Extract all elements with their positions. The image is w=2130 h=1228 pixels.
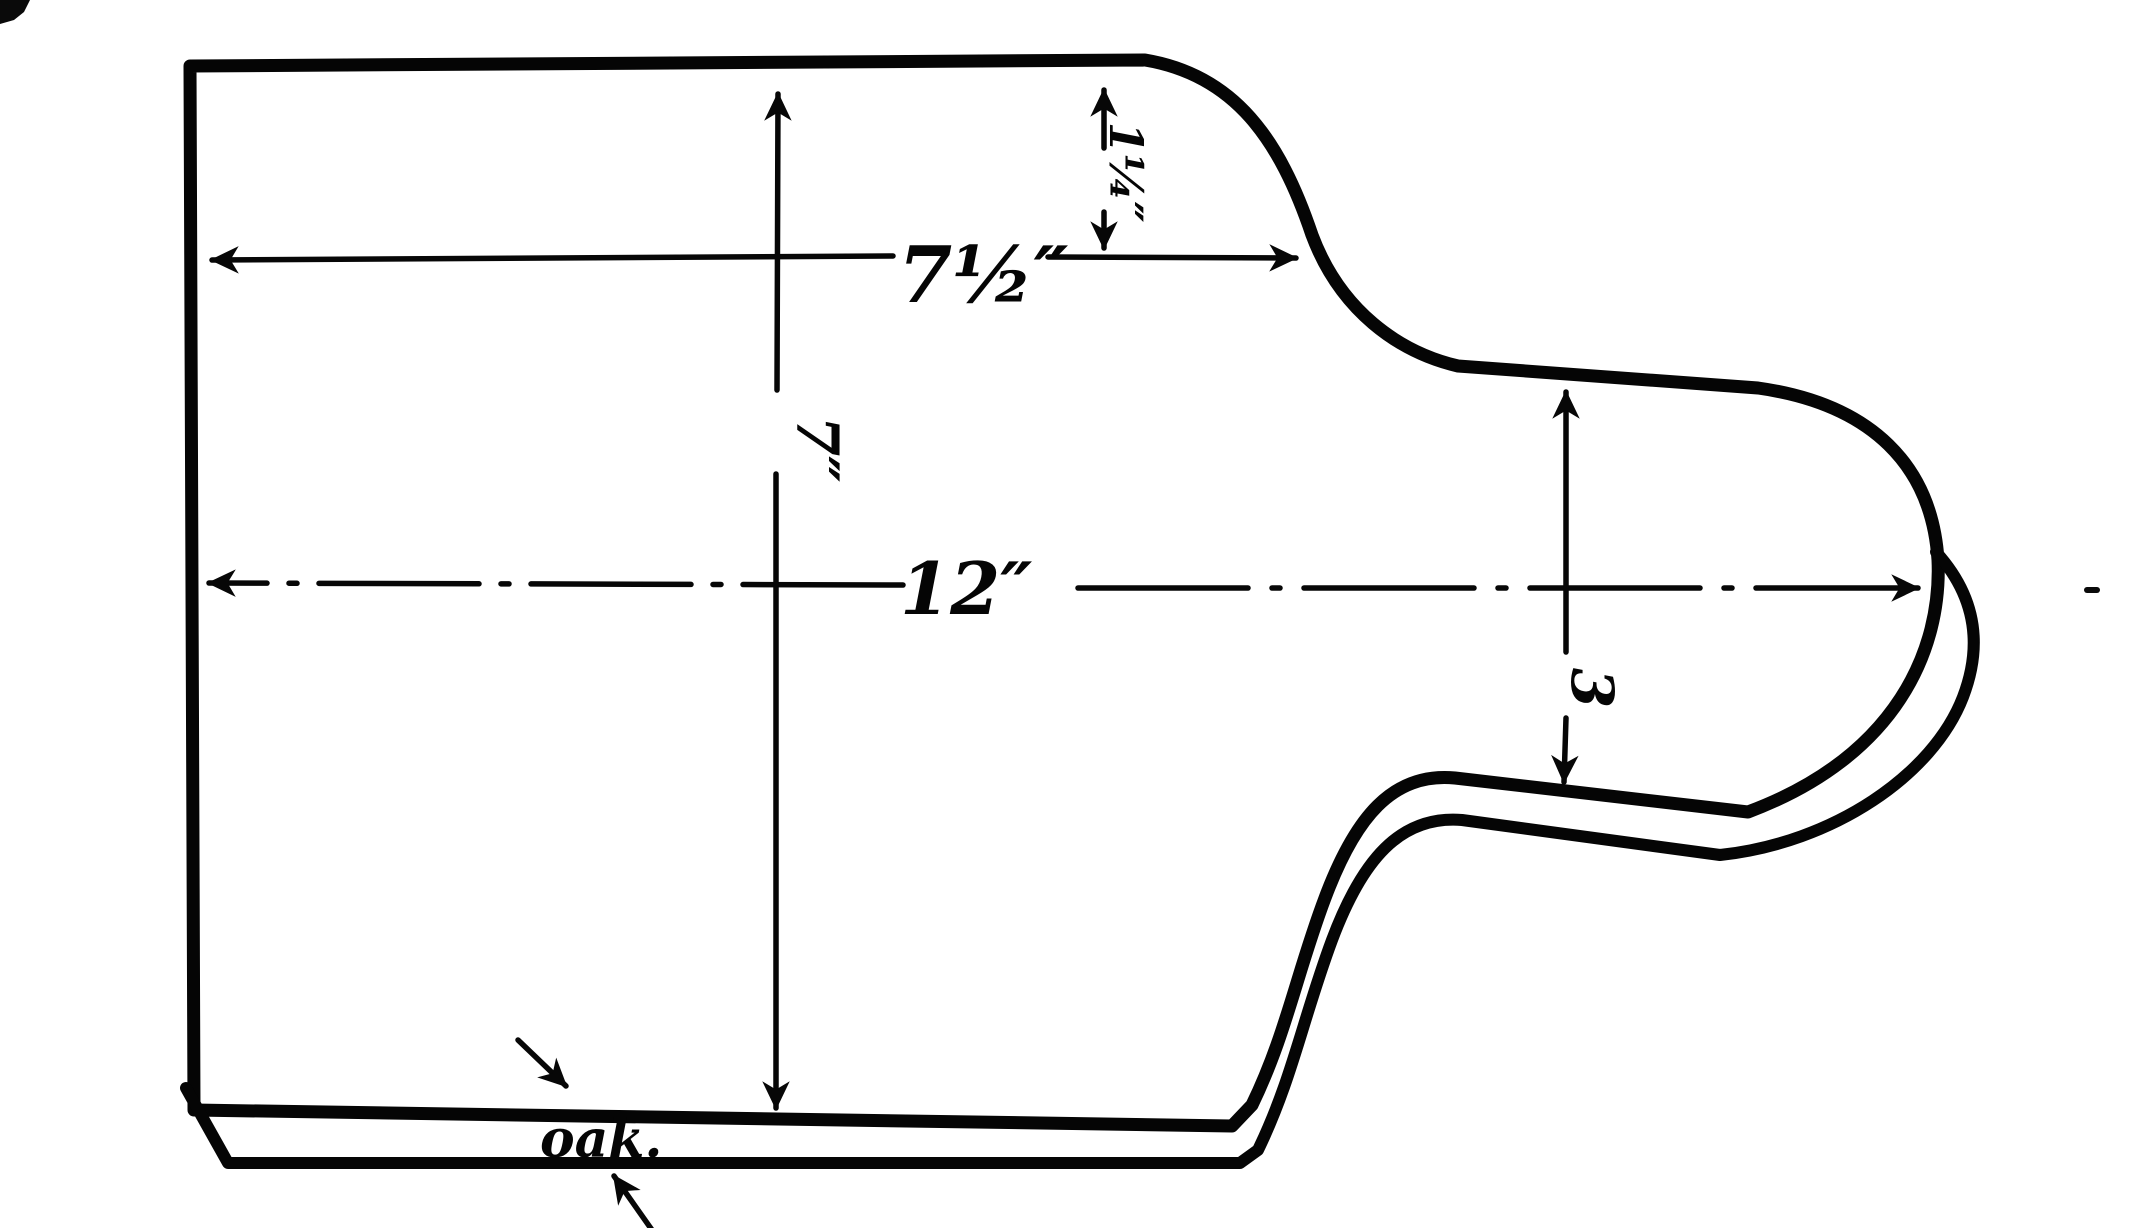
dimension-length-label: 12″ (900, 546, 1032, 631)
dimension-width-label: 7″ (783, 416, 851, 482)
material-leader-lower (614, 1176, 652, 1228)
dimension-shoulder-line-right (1048, 257, 1296, 258)
scan-corner-artifact (0, 0, 30, 24)
dimension-handle-line-down (1564, 718, 1566, 782)
material-note-label: oak. (540, 1109, 663, 1170)
dimension-shoulder-label: 7½″ (898, 230, 1069, 321)
pattern-drawing: 7½″ 1¼″ 12″ 7″ 3 oak (0, 0, 2130, 1228)
board-thickness-edge (186, 552, 1974, 1163)
dimension-shoulder-length: 7½″ (212, 230, 1296, 321)
dimension-curve-drop-label: 1¼″ (1099, 122, 1153, 223)
board-outline (190, 60, 1938, 1126)
dimension-shoulder-line-left (212, 256, 893, 260)
dimension-length-line-left (209, 583, 903, 585)
dimension-width-line-up (777, 94, 778, 390)
material-note-group: oak. (518, 1040, 663, 1228)
material-leader-upper (518, 1040, 566, 1086)
dimension-overall-length: 12″ (209, 546, 1918, 631)
dimension-handle-label: 3 (1558, 668, 1626, 708)
scanned-drawing-sheet: 7½″ 1¼″ 12″ 7″ 3 oak (0, 0, 2130, 1228)
scan-speck-artifact (2084, 587, 2100, 593)
dimension-board-width: 7″ (776, 94, 851, 1108)
dimension-curve-drop: 1¼″ (1099, 90, 1153, 248)
